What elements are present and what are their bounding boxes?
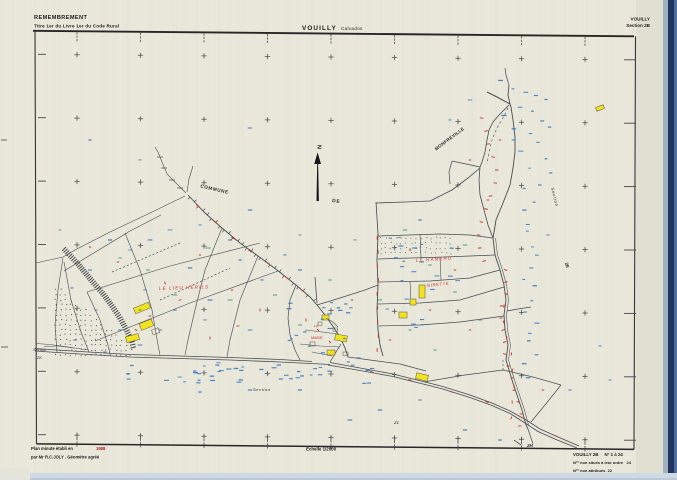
svg-text:Section 2B: Section 2B [626,23,650,28]
svg-text:Nos non attribués 22: Nos non attribués 22 [573,468,613,473]
svg-text:Section: Section [33,347,47,352]
svg-text:Titre 1er du Livre 1er du Code: Titre 1er du Livre 1er du Code Rural [34,24,119,29]
svg-text:Section: Section [253,387,271,392]
svg-text:N: N [315,145,321,149]
svg-text:VOUILLY: VOUILLY [302,25,337,32]
svg-text:1988: 1988 [96,446,106,451]
svg-text:Calvados: Calvados [341,26,363,31]
svg-text:2H: 2H [526,443,534,448]
svg-text:VOUILLY: VOUILLY [631,17,651,22]
svg-text:Plan minute établi en: Plan minute établi en [31,446,73,451]
svg-text:REMEMBREMENT: REMEMBREMENT [34,15,87,21]
svg-text:DE: DE [332,198,341,205]
svg-text:Nos non situés à leur ordre: Nos non situés à leur ordre 24 [573,460,632,465]
svg-text:Echelle 1/2000: Echelle 1/2000 [306,447,337,452]
svg-text:par Mr R.C.JOLY . Géomètre agr: par Mr R.C.JOLY . Géomètre agréé [31,455,100,460]
svg-text:VOUILLY 2B N° 1 à 24: VOUILLY 2B N° 1 à 24 [573,452,623,457]
svg-text:MAIRIE: MAIRIE [311,336,323,340]
svg-text:21: 21 [393,420,399,425]
svg-text:2K: 2K [36,355,42,360]
